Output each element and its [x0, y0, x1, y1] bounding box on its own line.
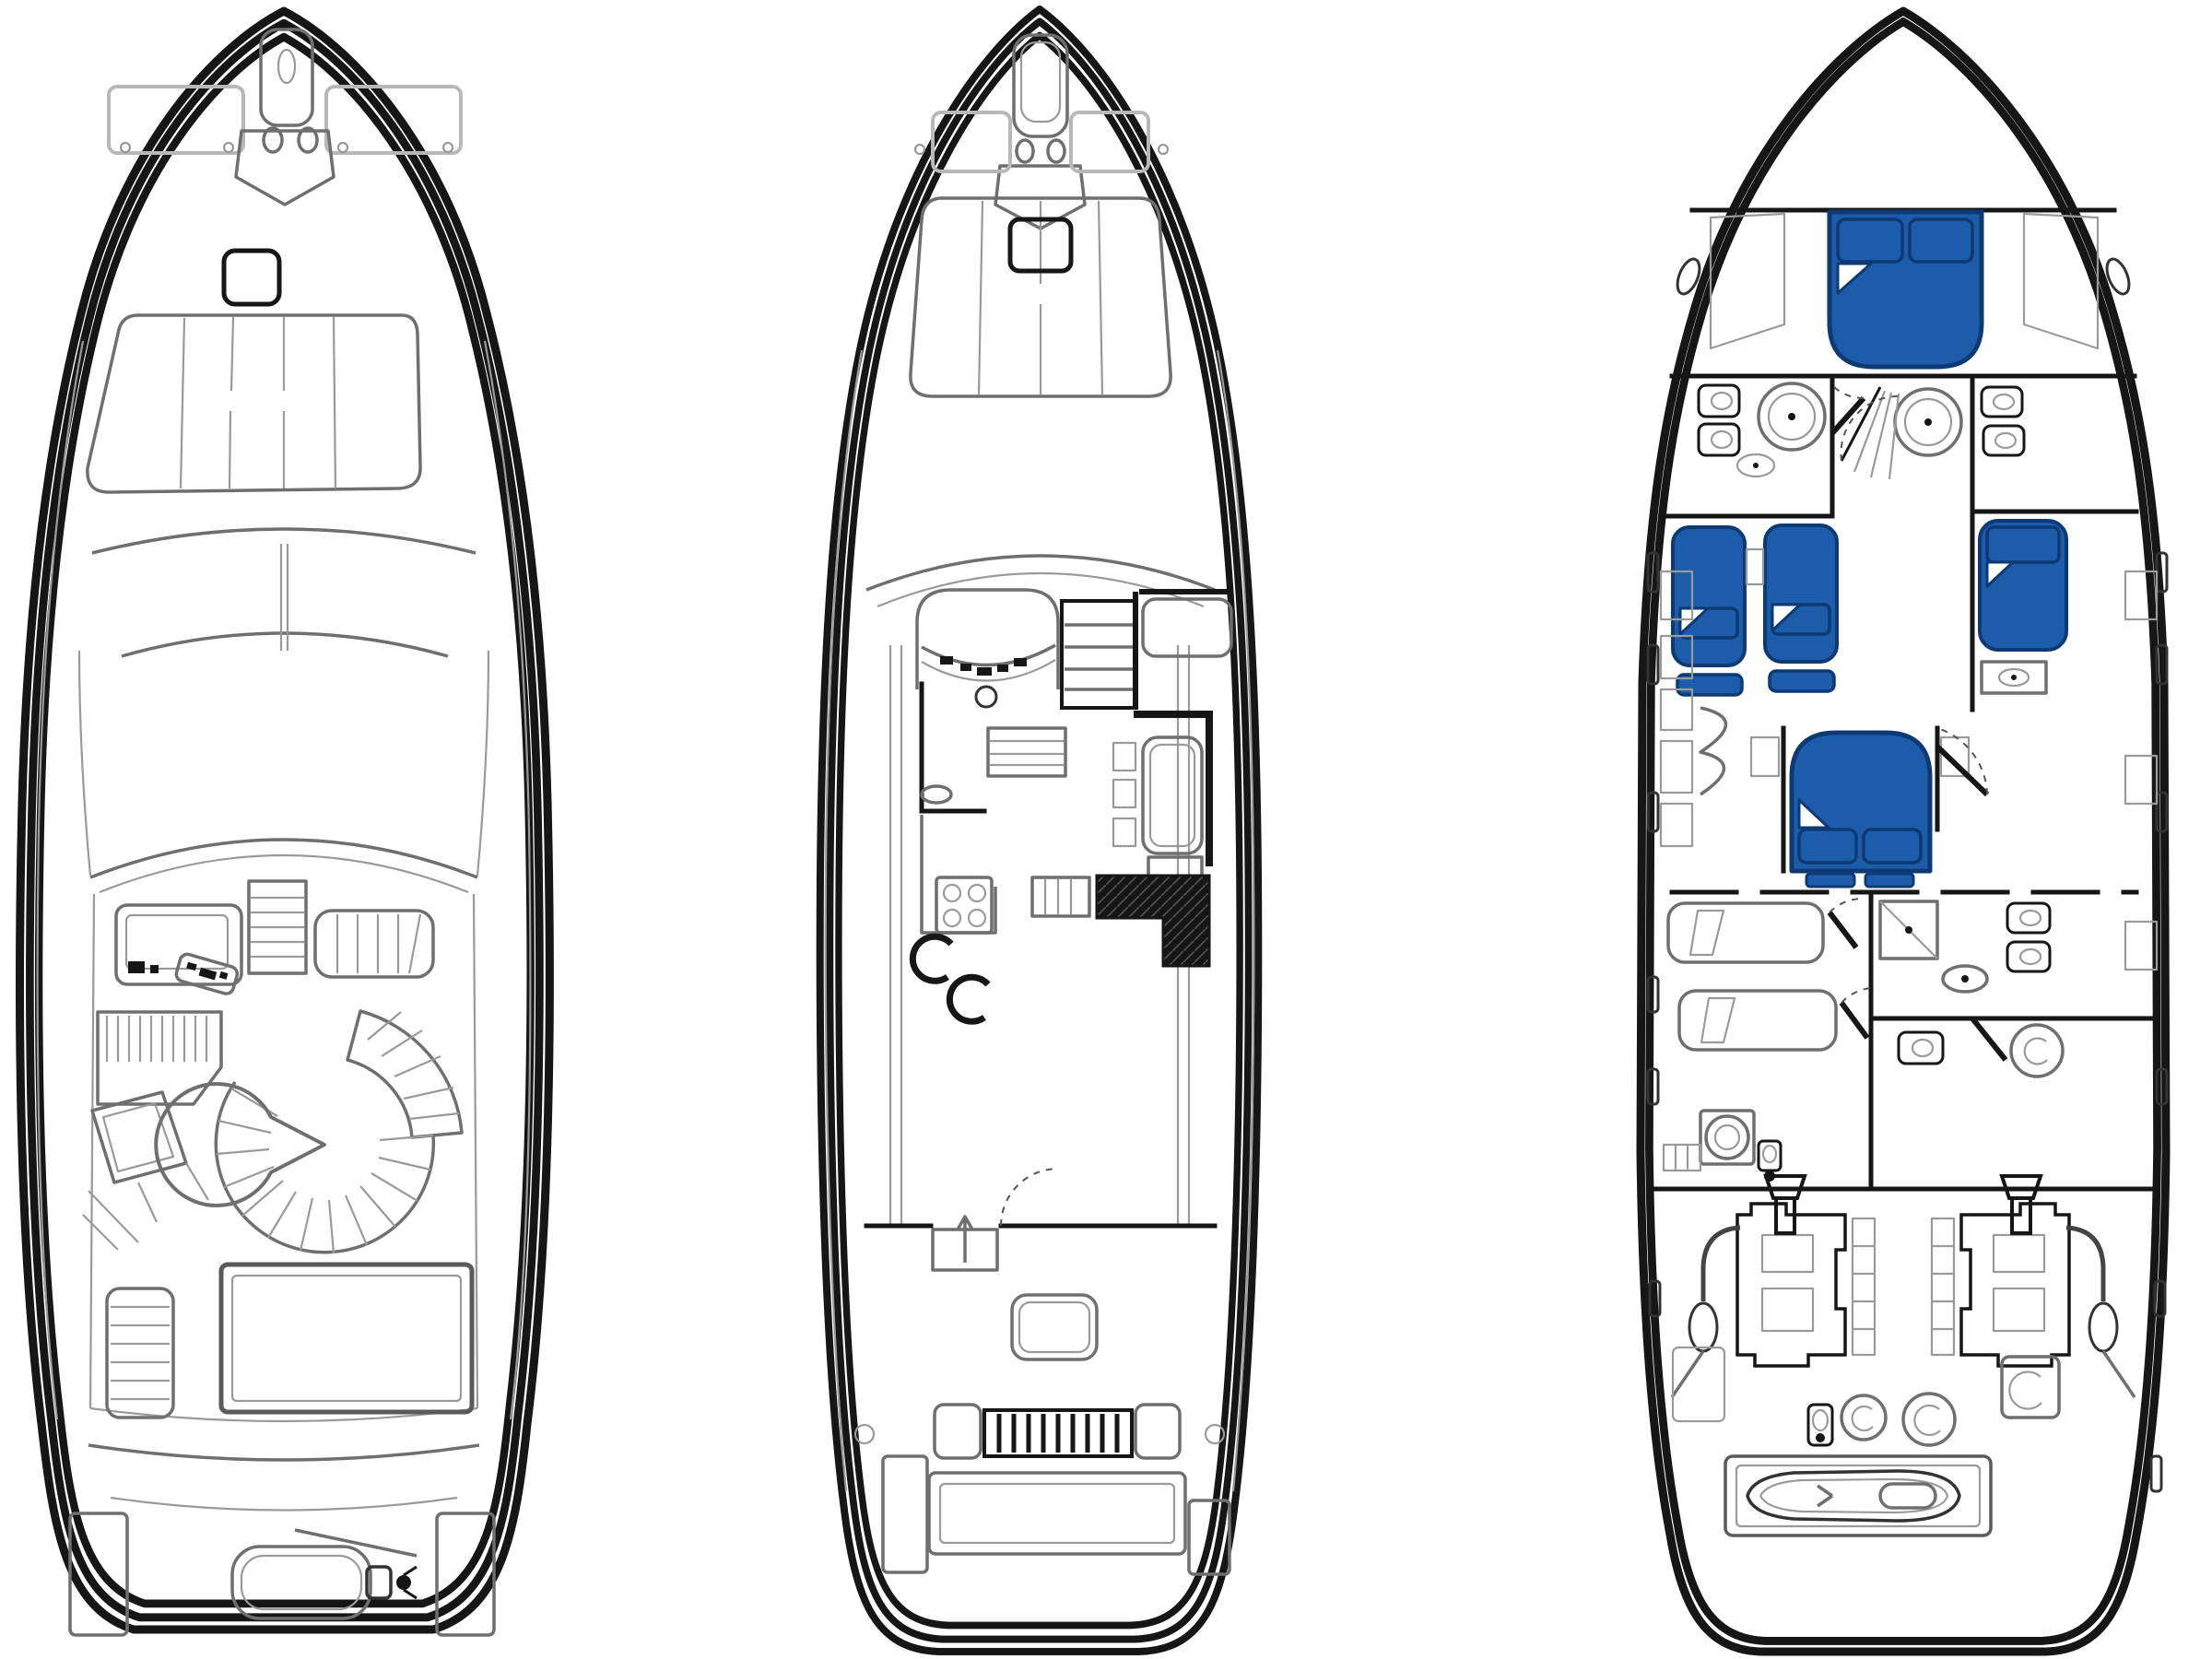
- deck-edge-line: [839, 35, 1240, 1625]
- propeller: [396, 1575, 411, 1590]
- twin-berth-1: [1673, 527, 1745, 665]
- flybridge-deck-plan: [20, 11, 550, 1635]
- jet-ski: [1747, 1471, 1959, 1521]
- lower-deck-plan: [1641, 11, 2167, 1652]
- deck-edge-line: [39, 37, 530, 1604]
- yacht-three-deck-floor-plan: [0, 0, 2212, 1659]
- instrument-block: [128, 961, 145, 973]
- berth-footrest: [1770, 671, 1834, 691]
- master-double-berth: [1792, 733, 1930, 871]
- main-deck-plan: [820, 9, 1259, 1652]
- twin-berth-2: [1765, 525, 1837, 662]
- guest-berth: [1980, 521, 2066, 650]
- vip-double-berth: [1830, 212, 1982, 367]
